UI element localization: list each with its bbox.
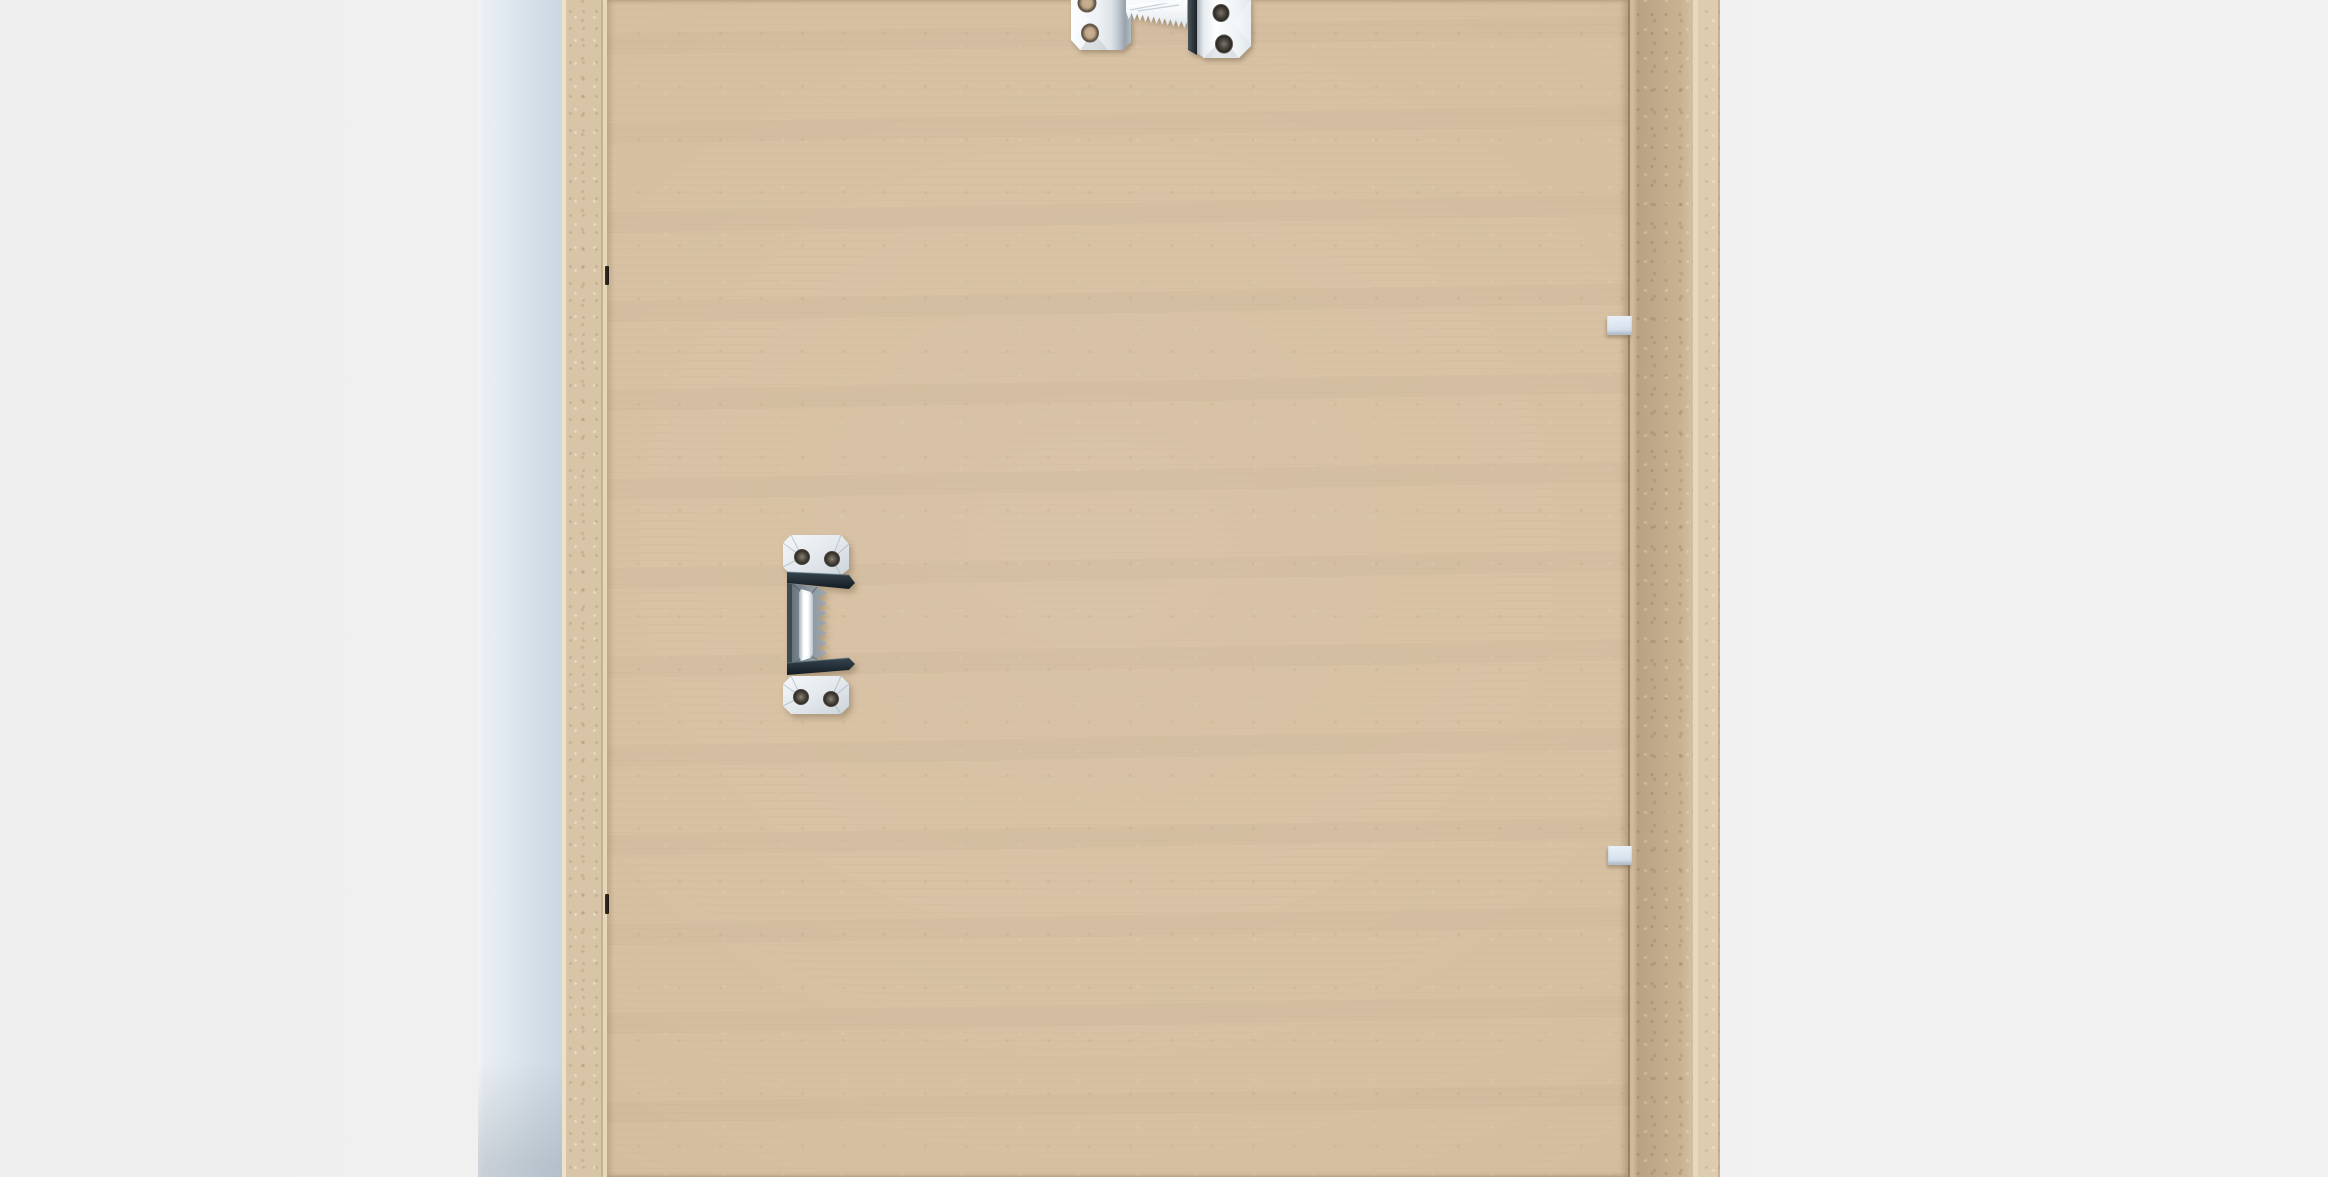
sawtooth-hanger-top-icon — [1063, 0, 1255, 62]
point-tab-top — [605, 266, 609, 285]
flexi-clip-top — [1607, 316, 1632, 335]
frame-right-outer-edge — [1698, 0, 1720, 1177]
sawtooth-hanger-side-icon — [779, 531, 859, 719]
backing-board — [607, 0, 1628, 1177]
frame-back-photo — [0, 0, 2328, 1177]
sawtooth-hanger-side — [779, 531, 859, 719]
frame-left-face — [478, 0, 562, 1177]
frame-right-inner-wall — [1628, 0, 1693, 1177]
frame-left-edge — [562, 0, 607, 1177]
point-tab-bottom — [605, 894, 609, 914]
flexi-clip-bottom — [1608, 846, 1632, 865]
sawtooth-hanger-top — [1063, 0, 1255, 62]
